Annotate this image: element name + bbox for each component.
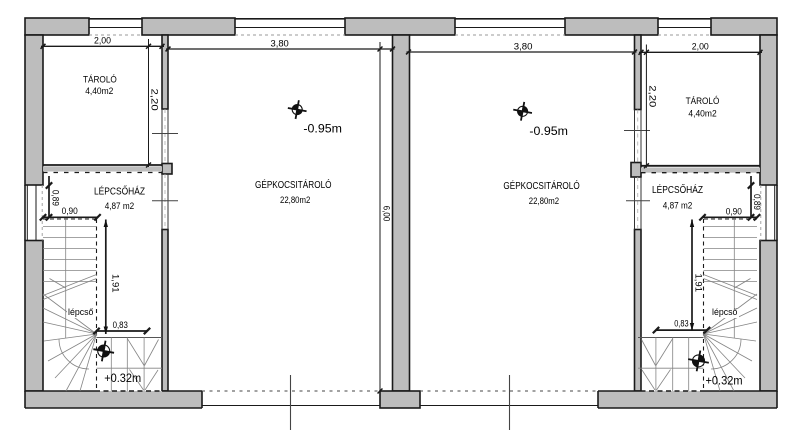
svg-text:2,00: 2,00	[94, 35, 111, 45]
svg-text:LÉPCSŐHÁZ: LÉPCSŐHÁZ	[652, 182, 703, 196]
svg-text:TÁROLÓ: TÁROLÓ	[686, 96, 720, 106]
svg-text:TÁROLÓ: TÁROLÓ	[83, 74, 117, 84]
svg-text:-0.95m: -0.95m	[529, 126, 568, 138]
svg-text:+0.32m: +0.32m	[104, 371, 141, 385]
svg-text:LÉPCSŐHÁZ: LÉPCSŐHÁZ	[94, 183, 145, 197]
svg-text:lépcső: lépcső	[712, 307, 737, 317]
svg-text:0,89: 0,89	[752, 194, 762, 210]
svg-text:22,80m2: 22,80m2	[280, 195, 310, 205]
svg-text:6,00: 6,00	[381, 206, 391, 222]
svg-text:3,80: 3,80	[514, 42, 533, 52]
svg-text:1,91: 1,91	[693, 274, 703, 293]
svg-text:GÉPKOCSITÁROLÓ: GÉPKOCSITÁROLÓ	[255, 178, 332, 191]
svg-text:3,80: 3,80	[271, 39, 289, 49]
svg-text:0,90: 0,90	[726, 207, 742, 217]
svg-text:0,83: 0,83	[674, 318, 688, 328]
svg-text:2,00: 2,00	[692, 41, 709, 51]
svg-text:2,20: 2,20	[648, 85, 658, 107]
svg-text:4,87 m2: 4,87 m2	[663, 201, 693, 211]
svg-text:-0.95m: -0.95m	[303, 124, 342, 136]
svg-text:4,87 m2: 4,87 m2	[105, 201, 135, 211]
svg-text:1,91: 1,91	[111, 274, 121, 293]
svg-text:22,80m2: 22,80m2	[529, 196, 559, 206]
svg-text:4,40m2: 4,40m2	[85, 86, 113, 96]
svg-text:+0.32m: +0.32m	[706, 374, 743, 388]
svg-text:2,20: 2,20	[150, 89, 160, 111]
svg-text:4,40m2: 4,40m2	[688, 109, 716, 119]
svg-text:GÉPKOCSITÁROLÓ: GÉPKOCSITÁROLÓ	[503, 179, 579, 192]
svg-text:0,89: 0,89	[51, 190, 61, 206]
svg-text:0,90: 0,90	[62, 206, 78, 216]
svg-text:0,83: 0,83	[113, 320, 128, 330]
svg-text:lépcső: lépcső	[68, 307, 93, 317]
